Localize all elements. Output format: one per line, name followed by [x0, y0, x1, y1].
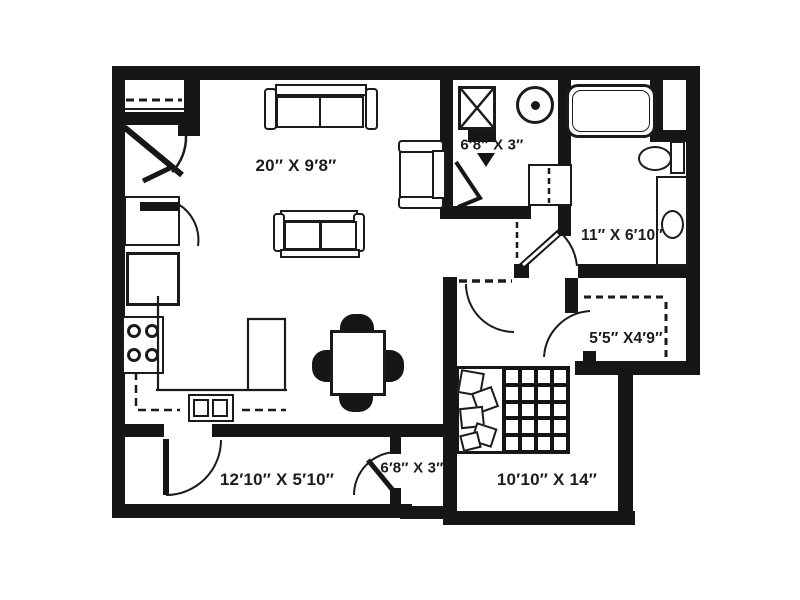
wall-left-exterior [112, 66, 125, 518]
bathtub-inner [572, 90, 650, 132]
room-label-walkin-closet: 5′5″ X4′9″ [589, 330, 662, 348]
kitchen-sink-basin [193, 399, 209, 417]
bed-pillows [456, 366, 502, 454]
kitchen-sink-basin [212, 399, 228, 417]
armchair-cushion [399, 151, 434, 198]
wall-kitchen-bottom-b [212, 424, 454, 437]
loveseat-arm-right [365, 88, 378, 130]
wall-wic-hinge [583, 351, 596, 362]
loveseat-back [275, 84, 367, 96]
toilet-tank [670, 141, 685, 174]
floor-plan: 20″ X 9′8″ 6′8″ X 3″ 11″ X 6′10″ 5′5″ X4… [0, 0, 800, 600]
bathroom-door-leaf [521, 232, 560, 267]
stove [122, 316, 164, 374]
wall-bedroom-bottom [443, 511, 635, 525]
sofa-skirt [280, 249, 360, 258]
stove-burner-icon [127, 324, 141, 338]
sofa-cushion [320, 221, 357, 250]
wall-bathroom-bottom [578, 264, 700, 278]
counter-peninsula [248, 319, 285, 390]
pantry-door-arc [178, 204, 198, 246]
bifold-door-lines [456, 162, 480, 207]
bedroom-door-arc [466, 284, 514, 332]
wall-wic-left-stub [565, 278, 578, 313]
sofa-cushion [284, 221, 321, 250]
wall-patio-bottom [112, 504, 412, 518]
room-label-living: 20″ X 9′8″ [256, 156, 337, 176]
bathroom-door-leaf-core [523, 234, 558, 265]
mechanical-cabinet [528, 164, 572, 206]
wall-entrycloset-stub-bottom [390, 488, 401, 506]
armchair-back [432, 150, 446, 199]
stove-burner-icon [145, 348, 159, 362]
wall-right-exterior [686, 66, 700, 375]
dining-table [330, 330, 386, 396]
entry-door-leaf2 [143, 168, 170, 181]
wall-entry-stub [178, 123, 200, 136]
dining-chair-top [340, 314, 374, 331]
patio-door-arc [166, 440, 221, 495]
wall-hall-post [514, 264, 529, 278]
refrigerator [126, 252, 180, 306]
dining-chair-right [386, 350, 404, 382]
wall-bedroom-right [618, 361, 633, 525]
stove-burner-icon [127, 348, 141, 362]
room-label-bathroom: 11″ X 6′10″ [581, 227, 663, 245]
toilet-bowl-icon [638, 146, 672, 171]
entry-door-leaf [124, 127, 182, 175]
dining-chair-left [312, 350, 330, 382]
room-label-bedroom: 10′10″ X 14″ [497, 470, 597, 490]
wall-top-exterior [112, 66, 700, 80]
wall-bedroom-left [443, 277, 457, 524]
wall-entrycloset-stub-top [390, 437, 401, 454]
dining-chair-bottom [339, 395, 373, 412]
room-label-laundry: 6′8″ X 3″ [460, 137, 523, 154]
washer-icon [458, 86, 496, 130]
bathroom-door-arc [561, 233, 577, 266]
dryer-dot-icon [531, 101, 540, 110]
entry-door-arc [172, 136, 186, 172]
room-label-entry-closet: 6′8″ X 3″ [380, 460, 443, 477]
stove-burner-icon [145, 324, 159, 338]
wall-kitchen-bottom-a [124, 424, 164, 437]
wall-laundry-bottom [440, 206, 531, 219]
vanity-sink-icon [661, 210, 684, 239]
wall-coatcloset-right [184, 80, 200, 125]
room-label-patio: 12′10″ X 5′10″ [220, 470, 334, 490]
bed-quilt [502, 366, 570, 454]
wall-closet-bottom [575, 361, 700, 375]
loveseat-cushion [276, 96, 321, 128]
pantry-door-leaf [140, 202, 178, 211]
loveseat-cushion [319, 96, 364, 128]
arrow-down-icon [477, 153, 495, 167]
